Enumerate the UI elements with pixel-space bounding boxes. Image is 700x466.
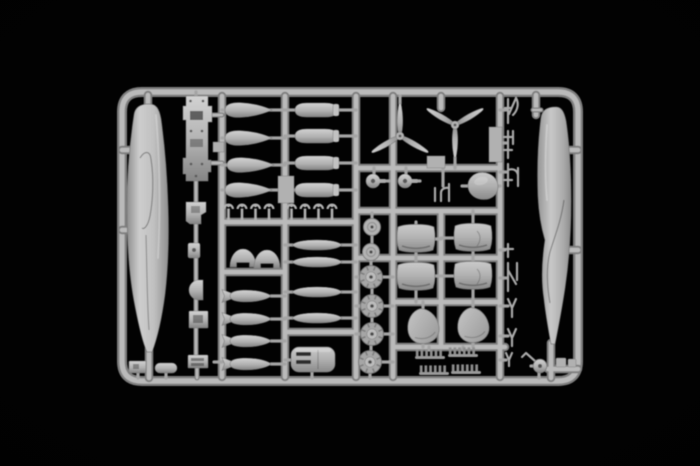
sprue-photo xyxy=(0,0,700,466)
sprue-illustration xyxy=(0,0,700,466)
vignette-overlay xyxy=(0,0,700,466)
